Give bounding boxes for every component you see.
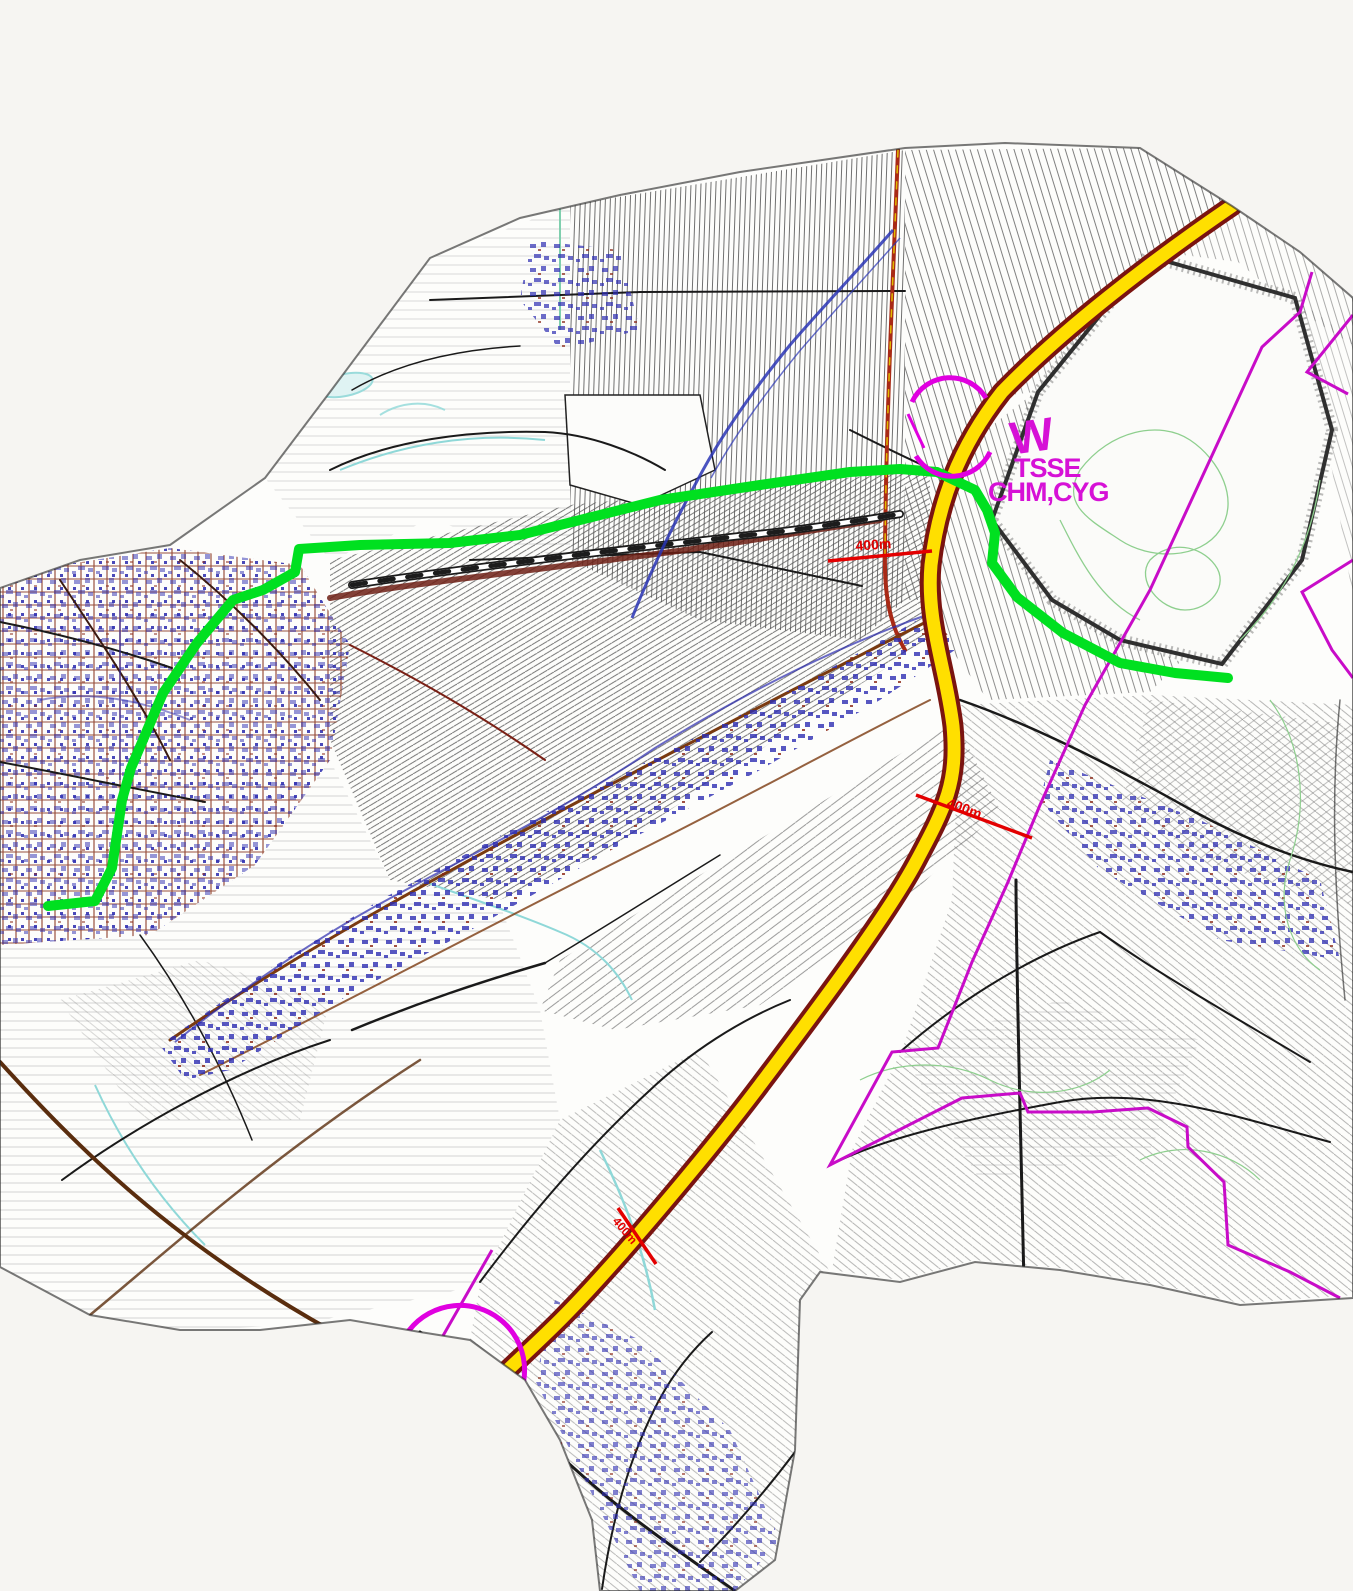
- parcel-region: [265, 205, 570, 560]
- route-main-endcap: [456, 1432, 490, 1434]
- interchange-circle-south: [402, 1430, 517, 1499]
- stream: [388, 1440, 420, 1530]
- label-chm-jad: CHM,JAD: [366, 1517, 491, 1549]
- distance-marker-label: 400m: [855, 535, 892, 553]
- distance-marker-label: 400m: [492, 1417, 521, 1432]
- map-page: W TSSE CHM,CYG W CHM,JAD 400m 400m 400m: [0, 0, 1353, 1591]
- distance-marker-line: [474, 1434, 562, 1444]
- interchange-symbol-south: W: [401, 1456, 457, 1519]
- map-canvas: W TSSE CHM,CYG W CHM,JAD 400m 400m 400m: [0, 0, 1353, 1591]
- label-chm-cyg: CHM,CYG: [988, 477, 1109, 507]
